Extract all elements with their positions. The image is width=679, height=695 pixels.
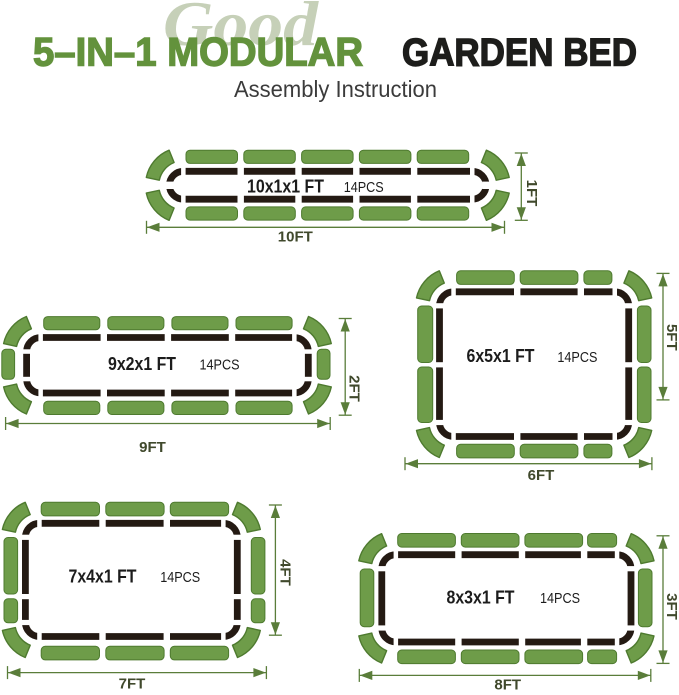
svg-text:7FT: 7FT [119, 676, 146, 691]
svg-text:Assembly Instruction: Assembly Instruction [234, 76, 437, 102]
svg-text:6x5x1 FT: 6x5x1 FT [467, 345, 536, 366]
svg-text:10x1x1 FT: 10x1x1 FT [247, 176, 325, 197]
svg-text:9x2x1 FT: 9x2x1 FT [108, 353, 177, 374]
svg-text:5FT: 5FT [663, 324, 679, 351]
svg-text:7x4x1 FT: 7x4x1 FT [69, 566, 138, 587]
svg-text:10FT: 10FT [278, 229, 313, 246]
svg-text:14PCS: 14PCS [200, 358, 240, 374]
svg-text:4FT: 4FT [276, 559, 293, 586]
svg-text:14PCS: 14PCS [160, 570, 200, 586]
svg-text:5–IN–1 MODULAR: 5–IN–1 MODULAR [33, 30, 363, 74]
svg-text:1FT: 1FT [523, 180, 540, 207]
svg-text:14PCS: 14PCS [540, 591, 580, 607]
svg-text:14PCS: 14PCS [557, 350, 597, 366]
svg-text:9FT: 9FT [139, 439, 166, 456]
svg-text:14PCS: 14PCS [344, 180, 384, 196]
svg-text:GARDEN BED: GARDEN BED [402, 31, 637, 74]
svg-text:8FT: 8FT [494, 677, 521, 691]
svg-text:6FT: 6FT [528, 467, 555, 484]
svg-text:2FT: 2FT [346, 375, 363, 402]
svg-text:8x3x1 FT: 8x3x1 FT [447, 587, 516, 608]
svg-text:3FT: 3FT [663, 593, 679, 620]
